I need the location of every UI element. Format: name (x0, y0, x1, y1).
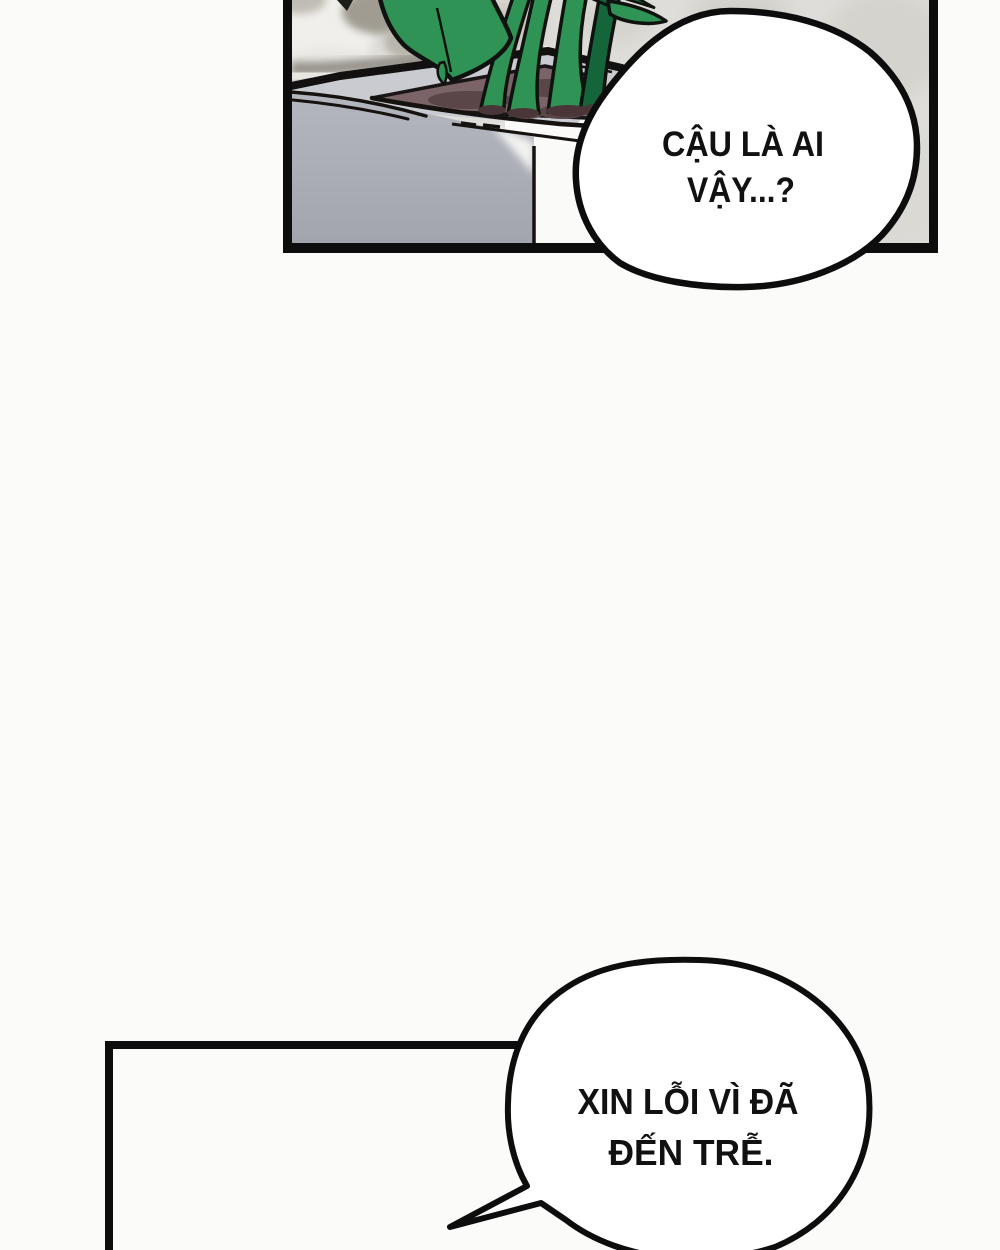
svg-text:CẬU LÀ AI: CẬU LÀ AI (662, 124, 824, 164)
svg-text:ĐẾN TRỄ.: ĐẾN TRỄ. (609, 1131, 774, 1173)
svg-text:VẬY...?: VẬY...? (687, 170, 795, 210)
svg-text:XIN LỖI VÌ ĐÃ: XIN LỖI VÌ ĐÃ (578, 1080, 799, 1122)
